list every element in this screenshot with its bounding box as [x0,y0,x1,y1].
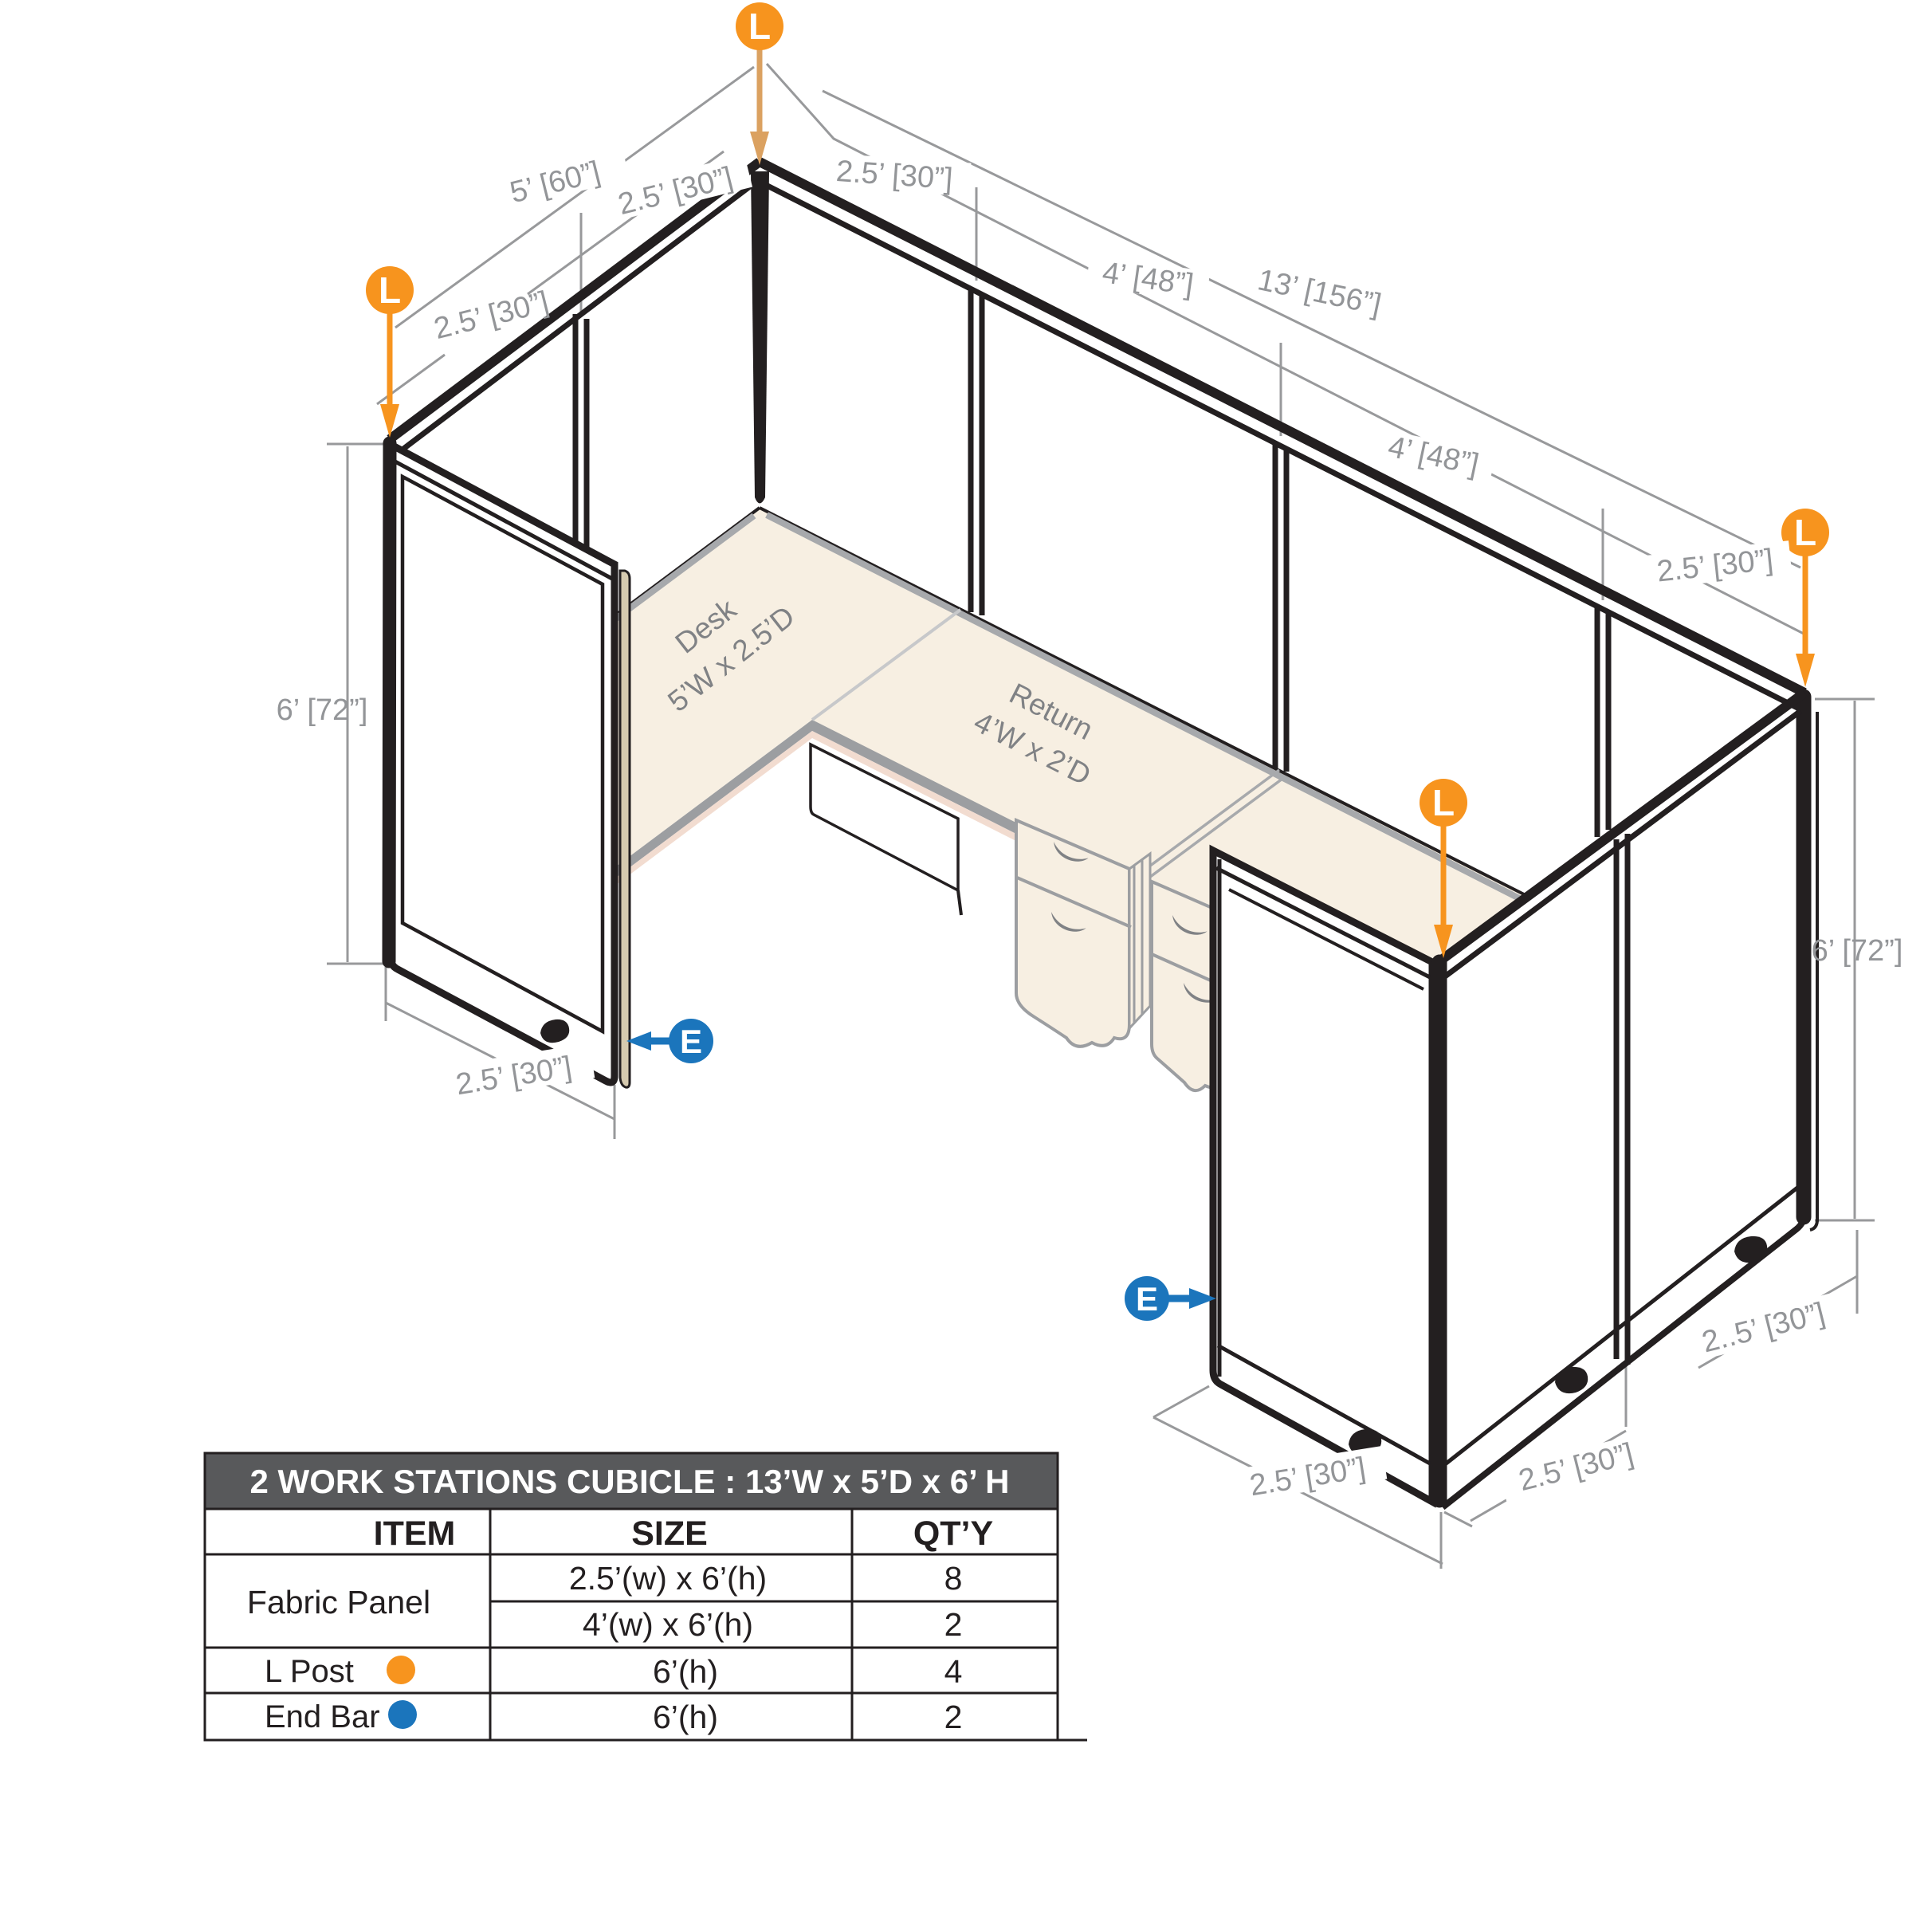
svg-text:L: L [1432,782,1455,823]
svg-text:E: E [680,1023,702,1060]
svg-text:4’(w) x 6’(h): 4’(w) x 6’(h) [583,1606,753,1643]
svg-text:End Bar: End Bar [265,1699,380,1734]
svg-text:L Post: L Post [265,1654,354,1689]
svg-text:2: 2 [944,1699,963,1735]
svg-text:L: L [379,269,401,311]
svg-text:6’(h): 6’(h) [653,1653,718,1690]
svg-text:6’ [72”]: 6’ [72”] [277,693,368,727]
svg-text:L: L [748,6,771,47]
svg-text:ITEM: ITEM [374,1514,456,1553]
svg-text:6’(h): 6’(h) [653,1699,718,1735]
svg-text:4: 4 [944,1653,963,1690]
svg-text:2.5’(w) x 6’(h): 2.5’(w) x 6’(h) [569,1560,767,1597]
svg-text:QT’Y: QT’Y [913,1514,993,1553]
svg-text:SIZE: SIZE [631,1514,708,1553]
svg-text:E: E [1136,1280,1158,1318]
svg-text:Fabric Panel: Fabric Panel [247,1584,430,1620]
svg-text:6’ [72”]: 6’ [72”] [1812,934,1903,968]
svg-text:2 WORK STATIONS CUBICLE : 13: 2 WORK STATIONS CUBICLE : 13’W x 5’D x 6… [250,1463,1010,1500]
svg-text:L: L [1794,512,1816,553]
svg-text:8: 8 [944,1560,963,1597]
svg-text:2: 2 [944,1606,963,1643]
